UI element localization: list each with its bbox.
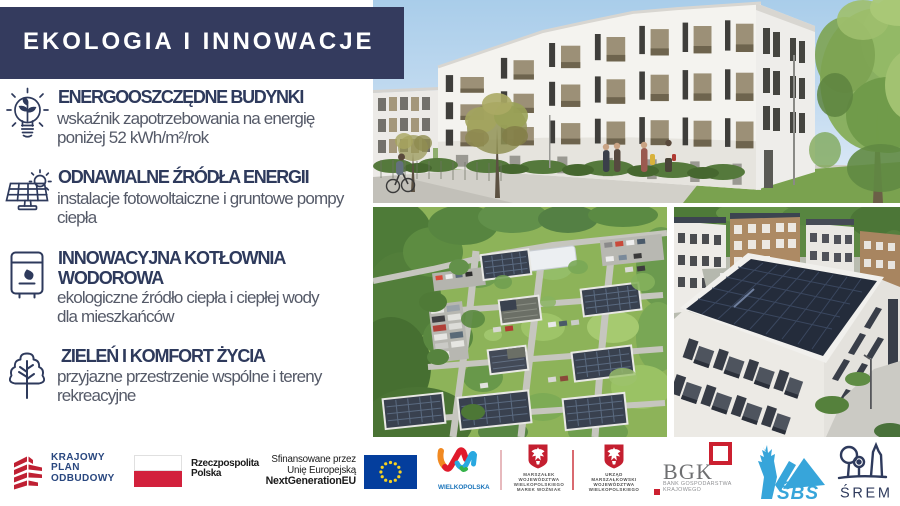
svg-text:ŚREM: ŚREM xyxy=(840,484,893,502)
svg-text:ŚBS: ŚBS xyxy=(777,482,819,503)
